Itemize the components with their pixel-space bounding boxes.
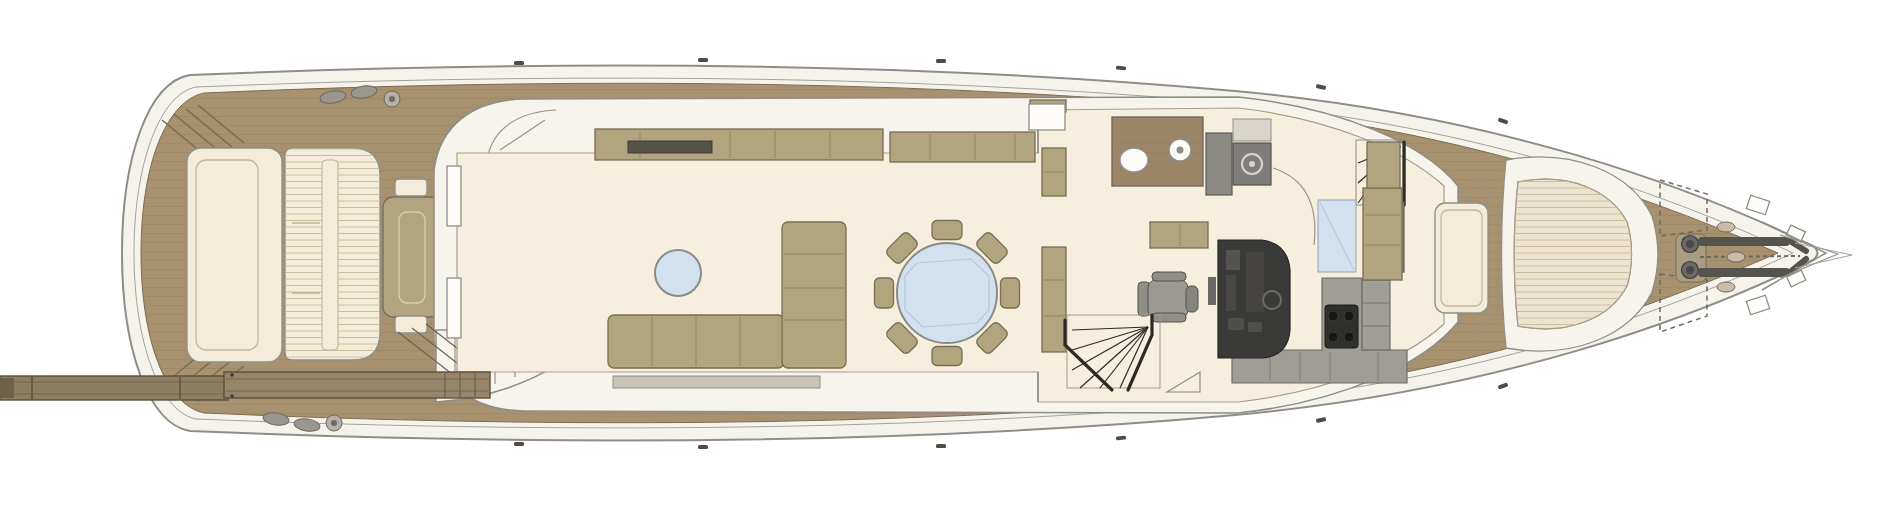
aft-sunpad-spine (322, 160, 338, 350)
bow-cleat-icon (1717, 282, 1735, 292)
cleat-tick (1116, 65, 1126, 70)
cleat-tick (1498, 117, 1509, 124)
bow-cleat-icon (1727, 252, 1745, 262)
passerelle-bolt (230, 394, 234, 398)
capstan-core (1686, 266, 1694, 274)
aft-deck-stool (395, 179, 427, 196)
capstan-core (1686, 240, 1694, 248)
toilet-icon (1120, 148, 1148, 172)
partition-cabinet (1042, 247, 1066, 352)
deck-fitting-dot (389, 96, 395, 102)
helm-chair-armrest (1152, 272, 1186, 281)
fairlead (1746, 195, 1769, 214)
cleat-tick (514, 442, 524, 446)
burner-icon (1344, 332, 1354, 342)
burner-icon (1328, 311, 1338, 321)
dining-chair (932, 347, 962, 366)
console-side-tab (1208, 277, 1216, 305)
console-instrument (1226, 275, 1236, 311)
dining-table-round (897, 243, 997, 343)
salon-sliding-door-panel (447, 278, 461, 338)
console-instrument (1248, 322, 1262, 332)
aft-deck-stool (395, 316, 427, 333)
burner-icon (1328, 332, 1338, 342)
console-screen (1246, 252, 1264, 312)
passerelle-gangway (0, 372, 490, 400)
dining-chair (932, 221, 962, 240)
chain-rail (1698, 268, 1790, 277)
console-instrument (1228, 318, 1244, 330)
locker-unit (1206, 133, 1232, 195)
helm-chair-footrest (1186, 286, 1198, 312)
console-instrument (1226, 250, 1240, 270)
dining-chair (875, 278, 894, 308)
fairlead (1746, 295, 1769, 314)
fridge-cabinet-column (1363, 188, 1402, 280)
cleat-tick (1316, 417, 1327, 423)
salon-window-slot (613, 376, 820, 388)
counter-top-piece (1233, 119, 1271, 141)
galley-drawer-stack (1362, 280, 1390, 350)
bow-cleat-icon (1717, 222, 1735, 232)
dining-area (875, 221, 1020, 366)
cleat-tick (1116, 435, 1126, 440)
passerelle-end-cap (0, 378, 14, 398)
cleat-tick (936, 444, 946, 448)
cleat-tick (698, 445, 708, 449)
passerelle-bolt (230, 373, 234, 377)
deck-plan-canvas (0, 0, 1900, 510)
cleat-tick (1316, 84, 1327, 90)
passerelle-forward-segment (224, 372, 490, 398)
cleat-tick (936, 59, 946, 63)
coffee-table-round (655, 250, 701, 296)
galley-upper-cabinet (1367, 142, 1400, 188)
salon-sliding-door-panel (447, 166, 461, 226)
salon-sofa-chaise (782, 222, 846, 368)
tv-cabinet-slot (628, 141, 712, 153)
foredeck-sunpad-table (1435, 203, 1488, 313)
burner-icon (1344, 311, 1354, 321)
chain-rail (1698, 237, 1790, 246)
sink-drain-dot (1177, 147, 1184, 154)
salon-sideboard-forward (890, 132, 1035, 162)
cleat-tick (698, 58, 708, 62)
helm-sideboard (1150, 222, 1208, 248)
dining-chair (1001, 278, 1020, 308)
side-deck-door (1029, 104, 1065, 130)
helm-chair-seat (1148, 280, 1188, 318)
day-head (1112, 117, 1203, 186)
dumbwaiter-dial-dot (1249, 161, 1255, 167)
anchor-chain-line (1700, 256, 1800, 257)
deck-fitting-dot (331, 420, 337, 426)
aft-deck-table (383, 197, 440, 317)
passerelle-aft-segment (0, 376, 228, 400)
yacht-deck-plan (0, 0, 1900, 510)
helm-chair-armrest (1152, 313, 1186, 322)
cleat-tick (514, 61, 524, 65)
transom-seat (187, 148, 282, 362)
cleat-tick (1498, 382, 1509, 389)
